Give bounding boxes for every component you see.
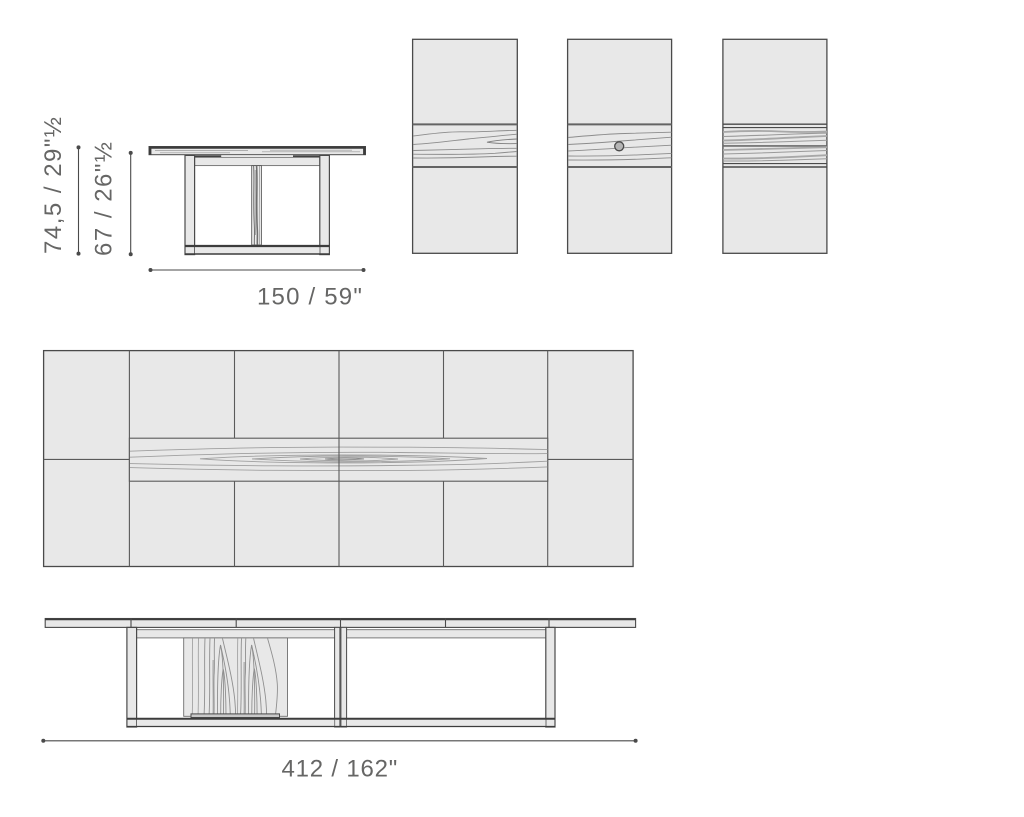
svg-text:412 / 162": 412 / 162" (282, 756, 399, 783)
svg-text:74,5 / 29"½: 74,5 / 29"½ (40, 116, 67, 254)
svg-text:150 / 59": 150 / 59" (257, 284, 363, 311)
svg-text:67 / 26"½: 67 / 26"½ (91, 141, 118, 256)
